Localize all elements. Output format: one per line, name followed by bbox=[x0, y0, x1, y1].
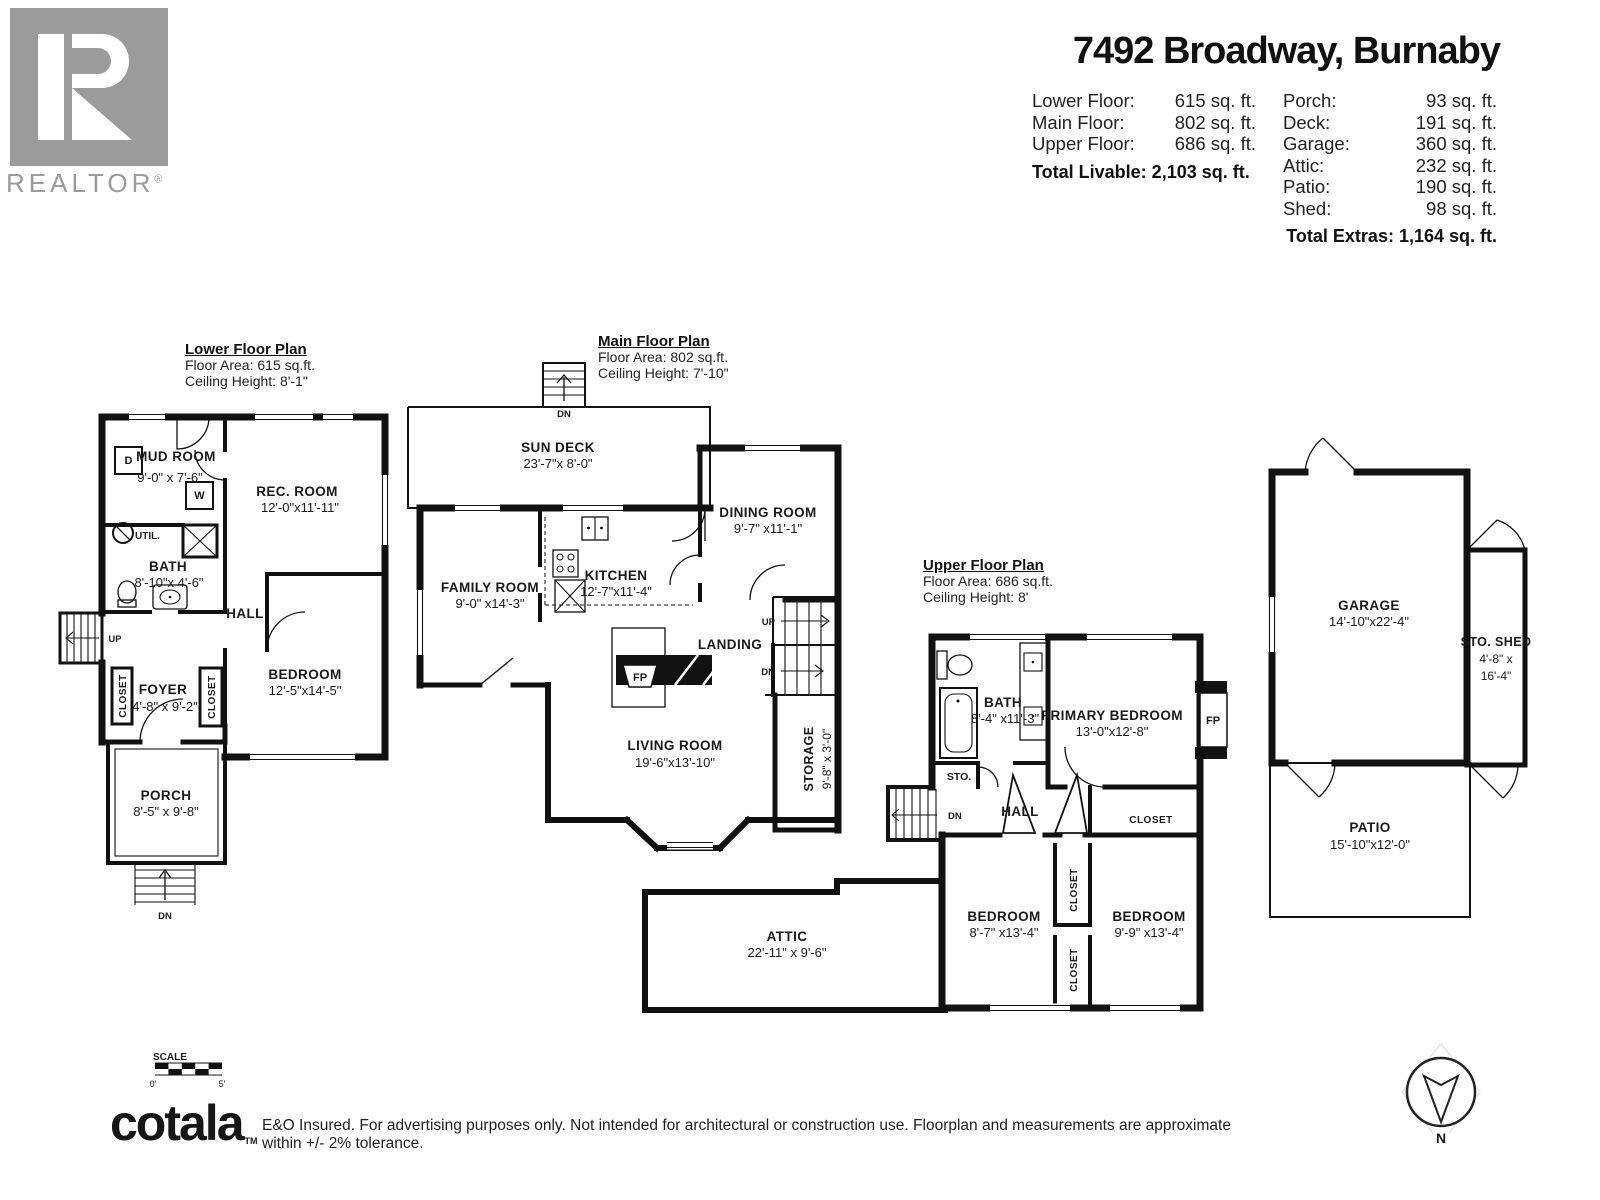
stat-row: Shed:98 sq. ft. bbox=[1283, 198, 1497, 220]
lower-closets: CLOSET CLOSET bbox=[112, 668, 222, 726]
label-garage: GARAGE bbox=[1338, 598, 1400, 613]
label-hall-upper: HALL bbox=[1001, 804, 1039, 819]
dims-sto-shed-2: 16'-4" bbox=[1481, 669, 1512, 683]
label-bedroom: BEDROOM bbox=[268, 667, 341, 682]
stats-right: Porch:93 sq. ft. Deck:191 sq. ft. Garage… bbox=[1283, 90, 1497, 219]
main-plan-title: Main Floor Plan bbox=[598, 333, 729, 350]
label-closet-2: CLOSET bbox=[1069, 948, 1080, 992]
scale-bar: SCALE 0' 5' bbox=[138, 1046, 258, 1092]
lower-plan-ceiling: Ceiling Height: 8'-1" bbox=[185, 374, 315, 390]
garage-labels: GARAGE 14'-10"x22'-4" STO. SHED 4'-8" x … bbox=[1329, 598, 1531, 852]
washer-icon: W bbox=[186, 482, 213, 509]
attic-walls: ATTIC 22'-11" x 9'-6" bbox=[645, 881, 945, 1010]
lower-plan-area: Floor Area: 615 sq.ft. bbox=[185, 358, 315, 374]
label-dining: DINING ROOM bbox=[719, 505, 816, 520]
dims-sun-deck: 23'-7"x 8'-0" bbox=[523, 456, 592, 471]
cotala-logo: cotalaTM bbox=[110, 1094, 258, 1152]
label-closet-1: CLOSET bbox=[1069, 868, 1080, 912]
realtor-word: REALTOR bbox=[6, 168, 154, 198]
lower-plan-title-block: Lower Floor Plan Floor Area: 615 sq.ft. … bbox=[185, 341, 315, 389]
label-patio: PATIO bbox=[1349, 820, 1390, 835]
label-sto-shed: STO. SHED bbox=[1461, 635, 1532, 649]
upper-fireplace: FP bbox=[1195, 681, 1227, 759]
label-up: UP bbox=[108, 634, 122, 645]
toilet-icon bbox=[118, 581, 136, 607]
label-primary-bedroom: PRIMARY BEDROOM bbox=[1041, 708, 1183, 723]
stat-row: Porch:93 sq. ft. bbox=[1283, 90, 1497, 112]
scale-label: SCALE bbox=[153, 1052, 187, 1063]
lower-floor-plan-drawing: UP D W UTIL. CLOSET CLOSET bbox=[55, 400, 400, 930]
dims-garage: 14'-10"x22'-4" bbox=[1329, 614, 1409, 629]
dims-bedroom-1: 8'-7" x13'-4" bbox=[969, 925, 1038, 940]
stats-left: Lower Floor:615 sq. ft. Main Floor:802 s… bbox=[1032, 90, 1256, 155]
svg-text:D: D bbox=[125, 455, 133, 467]
label-mud-room: MUD ROOM bbox=[136, 449, 216, 464]
dims-rec-room: 12'-0"x11'-11" bbox=[261, 500, 339, 515]
label-bath-upper: BATH bbox=[984, 695, 1022, 710]
dims-dining: 9'-7" x11'-1" bbox=[734, 521, 803, 536]
svg-text:W: W bbox=[194, 490, 205, 502]
label-bedroom-1: BEDROOM bbox=[967, 909, 1040, 924]
label-sun-deck: SUN DECK bbox=[521, 440, 595, 455]
dims-bedroom-2: 9'-9" x13'-4" bbox=[1114, 925, 1183, 940]
upper-floor-plan-drawing: ATTIC 22'-11" x 9'-6" DN FP bbox=[615, 595, 1240, 1025]
label-kitchen: KITCHEN bbox=[585, 568, 648, 583]
label-attic: ATTIC bbox=[767, 929, 808, 944]
floorplan-page: REALTOR® 7492 Broadway, Burnaby Lower Fl… bbox=[0, 0, 1600, 1200]
total-extras: Total Extras: 1,164 sq. ft. bbox=[1240, 226, 1497, 247]
dims-bedroom: 12'-5"x14'-5" bbox=[269, 683, 342, 698]
label-fp-upper: FP bbox=[1206, 715, 1220, 727]
stat-row: Garage:360 sq. ft. bbox=[1283, 133, 1497, 155]
lower-stairs-up: UP bbox=[60, 613, 122, 663]
stat-row: Lower Floor:615 sq. ft. bbox=[1032, 90, 1256, 112]
dims-sto-shed-1: 4'-8" x bbox=[1479, 652, 1512, 666]
label-dn-top: DN bbox=[557, 409, 571, 420]
stat-row: Deck:191 sq. ft. bbox=[1283, 112, 1497, 134]
dims-family: 9'-0" x14'-3" bbox=[455, 596, 524, 611]
label-hall: HALL bbox=[226, 606, 264, 621]
label-closet: CLOSET bbox=[118, 674, 129, 718]
porch-stairs: DN bbox=[135, 863, 195, 922]
cotala-wordmark: cotala bbox=[110, 1095, 243, 1151]
label-sto: STO. bbox=[947, 771, 971, 783]
upper-plan-area: Floor Area: 686 sq.ft. bbox=[923, 574, 1053, 590]
label-closet-primary: CLOSET bbox=[1129, 815, 1173, 826]
label-closet: CLOSET bbox=[207, 675, 218, 719]
label-bath: BATH bbox=[149, 559, 187, 574]
page-title: 7492 Broadway, Burnaby bbox=[900, 30, 1500, 73]
label-porch: PORCH bbox=[141, 788, 192, 803]
label-family: FAMILY ROOM bbox=[441, 580, 539, 595]
dims-patio: 15'-10"x12'-0" bbox=[1330, 837, 1410, 852]
registered-mark: ® bbox=[154, 173, 162, 185]
sun-deck-outline: SUN DECK 23'-7"x 8'-0" bbox=[408, 407, 710, 508]
upper-plan-title: Upper Floor Plan bbox=[923, 557, 1053, 574]
upper-room-labels: BATH 8'-4" x11'-3" PRIMARY BEDROOM 13'-0… bbox=[947, 695, 1186, 992]
lower-room-labels: MUD ROOM 9'-0" x 7'-6" REC. ROOM 12'-0"x… bbox=[132, 449, 341, 819]
dims-bath: 8'-10"x 4'-6" bbox=[134, 575, 203, 590]
total-livable: Total Livable: 2,103 sq. ft. bbox=[1032, 162, 1292, 183]
dims-attic: 22'-11" x 9'-6" bbox=[748, 945, 827, 960]
dims-foyer: 4'-8" x 9'-2" bbox=[132, 699, 198, 714]
compass-north-label: N bbox=[1436, 1130, 1446, 1146]
garage-drawing: GARAGE 14'-10"x22'-4" STO. SHED 4'-8" x … bbox=[1235, 420, 1540, 920]
realtor-logo-icon bbox=[10, 8, 170, 168]
scale-zero: 0' bbox=[150, 1079, 157, 1089]
label-util: UTIL. bbox=[135, 531, 160, 542]
realtor-label: REALTOR® bbox=[6, 168, 186, 199]
label-dn: DN bbox=[948, 811, 962, 822]
stat-row: Main Floor:802 sq. ft. bbox=[1032, 112, 1256, 134]
stat-row: Attic:232 sq. ft. bbox=[1283, 155, 1497, 177]
scale-five: 5' bbox=[219, 1079, 226, 1089]
disclaimer-text: E&O Insured. For advertising purposes on… bbox=[262, 1117, 1262, 1153]
dims-mud-room: 9'-0" x 7'-6" bbox=[137, 470, 203, 485]
scale-zigzag bbox=[155, 1063, 222, 1075]
stat-row: Patio:190 sq. ft. bbox=[1283, 176, 1497, 198]
label-foyer: FOYER bbox=[139, 682, 188, 697]
shower-icon bbox=[183, 525, 217, 557]
label-bedroom-2: BEDROOM bbox=[1112, 909, 1185, 924]
compass-icon: N bbox=[1396, 1040, 1488, 1152]
dims-bath-upper: 8'-4" x11'-3" bbox=[971, 711, 1040, 726]
trademark-mark: TM bbox=[245, 1136, 258, 1146]
deck-stairs: DN bbox=[543, 363, 585, 420]
dims-porch: 8'-5" x 9'-8" bbox=[133, 804, 199, 819]
lower-plan-title: Lower Floor Plan bbox=[185, 341, 315, 358]
upper-stairs: DN bbox=[892, 789, 962, 838]
label-rec-room: REC. ROOM bbox=[256, 484, 338, 499]
dims-primary-bedroom: 13'-0"x12'-8" bbox=[1076, 724, 1149, 739]
label-dn: DN bbox=[158, 911, 172, 922]
stat-row: Upper Floor:686 sq. ft. bbox=[1032, 133, 1256, 155]
